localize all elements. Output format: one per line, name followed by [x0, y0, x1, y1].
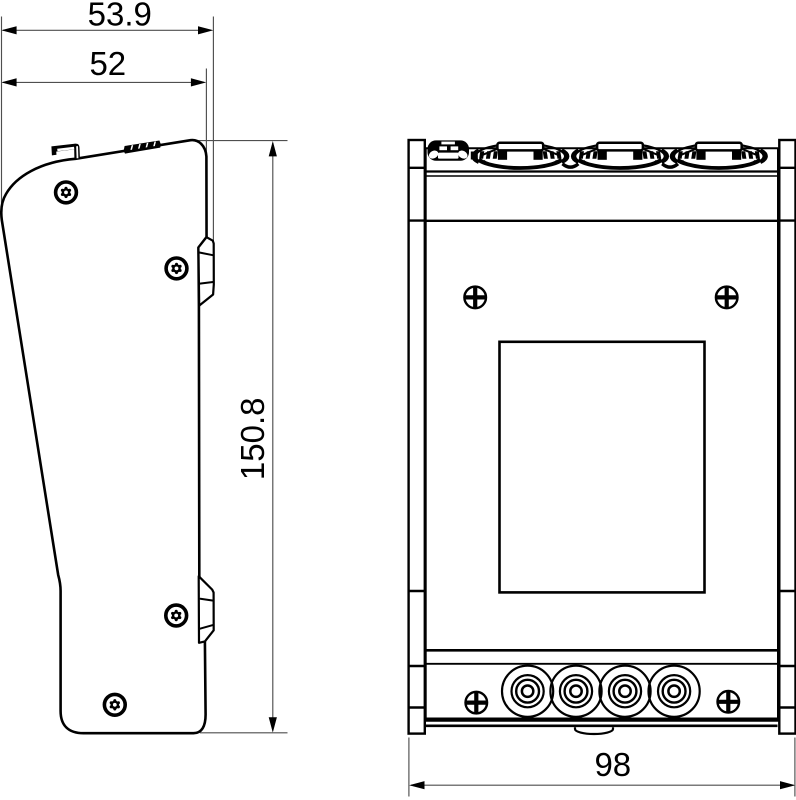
svg-text:98: 98 — [594, 746, 631, 783]
svg-text:150.8: 150.8 — [234, 398, 271, 481]
svg-text:53.9: 53.9 — [88, 0, 152, 33]
svg-text:52: 52 — [89, 45, 126, 82]
